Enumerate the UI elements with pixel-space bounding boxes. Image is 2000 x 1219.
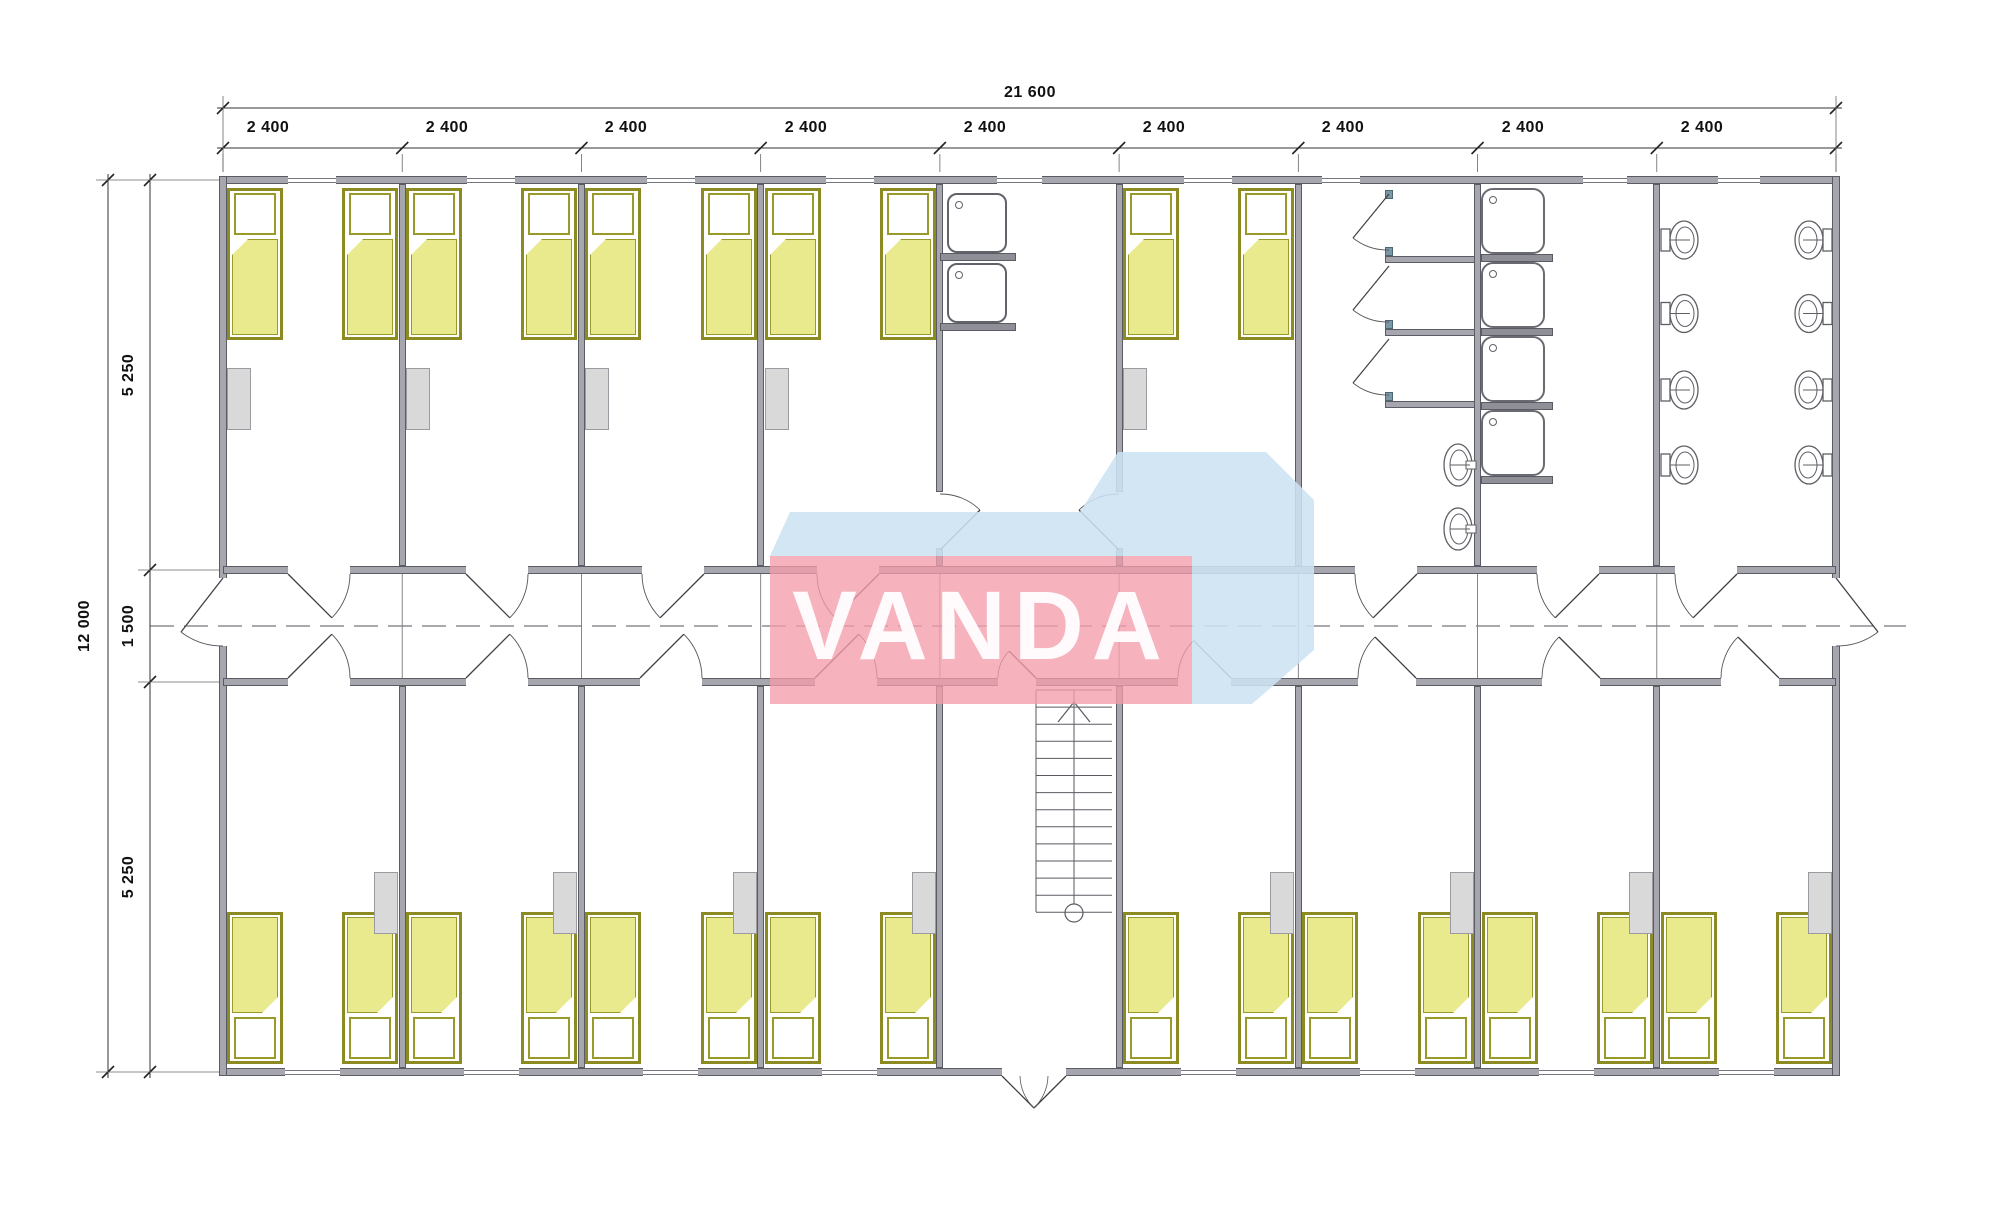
dim-side-seg-2: 1 500	[120, 581, 140, 671]
dim-seg-2: 2 400	[402, 119, 492, 139]
dim-side-seg-3: 5 250	[120, 832, 140, 922]
watermark-text: VANDA	[770, 552, 1192, 700]
dim-seg-3: 2 400	[581, 119, 671, 139]
dim-seg-6: 2 400	[1119, 119, 1209, 139]
dim-total-height: 12 000	[76, 581, 96, 671]
dim-seg-4: 2 400	[761, 119, 851, 139]
dim-seg-9: 2 400	[1657, 119, 1747, 139]
dim-seg-1: 2 400	[223, 119, 313, 139]
dim-total-width: 21 600	[985, 84, 1075, 104]
dim-seg-8: 2 400	[1478, 119, 1568, 139]
dim-seg-7: 2 400	[1298, 119, 1388, 139]
dim-side-seg-1: 5 250	[120, 330, 140, 420]
floor-plan-canvas: VANDA 21 600 2 400 2 400 2 400 2 400 2 4…	[0, 0, 2000, 1219]
dim-seg-5: 2 400	[940, 119, 1030, 139]
